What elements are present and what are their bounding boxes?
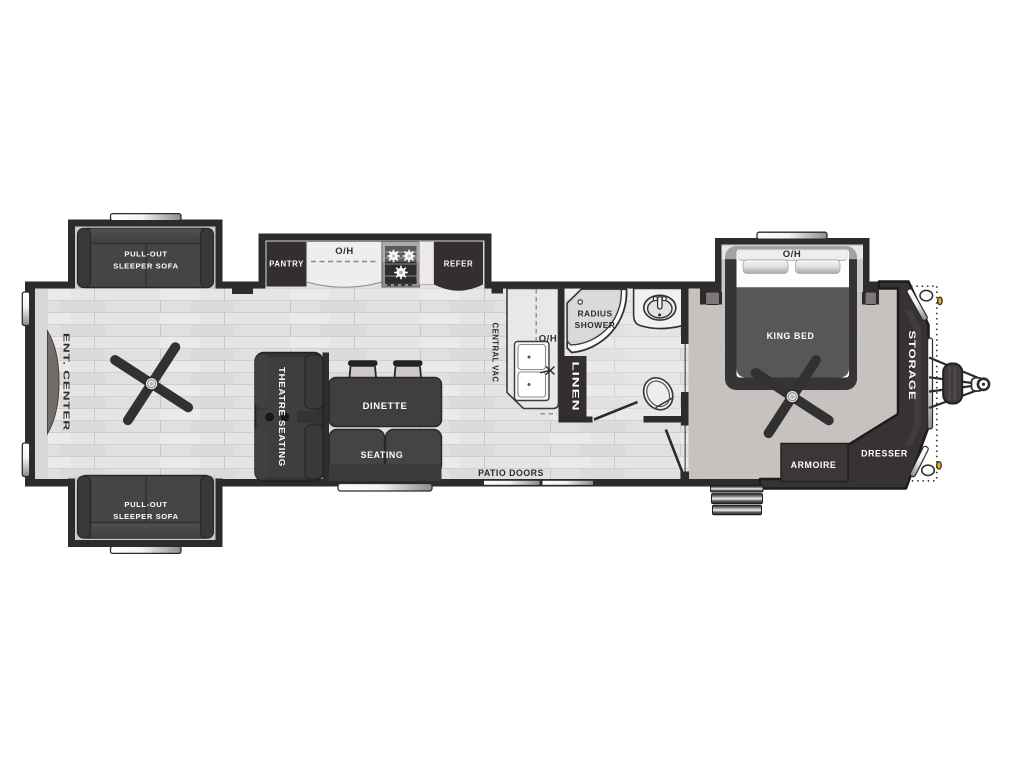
svg-text:STORAGE: STORAGE — [907, 331, 917, 401]
svg-text:PANTRY: PANTRY — [269, 260, 304, 269]
svg-text:O/H: O/H — [783, 249, 801, 260]
svg-text:ENT. CENTER: ENT. CENTER — [62, 333, 71, 431]
svg-text:O/H: O/H — [335, 246, 353, 257]
svg-text:PULL-OUT: PULL-OUT — [124, 250, 167, 259]
svg-text:LINEN: LINEN — [570, 362, 581, 412]
svg-text:PULL-OUT: PULL-OUT — [124, 500, 167, 509]
svg-text:KING BED: KING BED — [767, 331, 815, 341]
svg-text:REFER: REFER — [444, 260, 473, 269]
svg-text:THEATRE SEATING: THEATRE SEATING — [277, 367, 287, 467]
svg-text:PATIO DOORS: PATIO DOORS — [478, 468, 544, 478]
svg-text:DINETTE: DINETTE — [363, 401, 408, 412]
svg-text:DRESSER: DRESSER — [861, 449, 908, 459]
svg-text:SEATING: SEATING — [361, 450, 404, 460]
svg-text:SHOWER: SHOWER — [575, 320, 616, 330]
svg-text:RADIUS: RADIUS — [577, 309, 612, 319]
svg-text:SLEEPER SOFA: SLEEPER SOFA — [113, 262, 178, 271]
svg-text:SLEEPER SOFA: SLEEPER SOFA — [113, 512, 178, 521]
svg-text:ARMOIRE: ARMOIRE — [791, 460, 837, 470]
svg-text:CENTRAL VAC: CENTRAL VAC — [491, 323, 500, 383]
